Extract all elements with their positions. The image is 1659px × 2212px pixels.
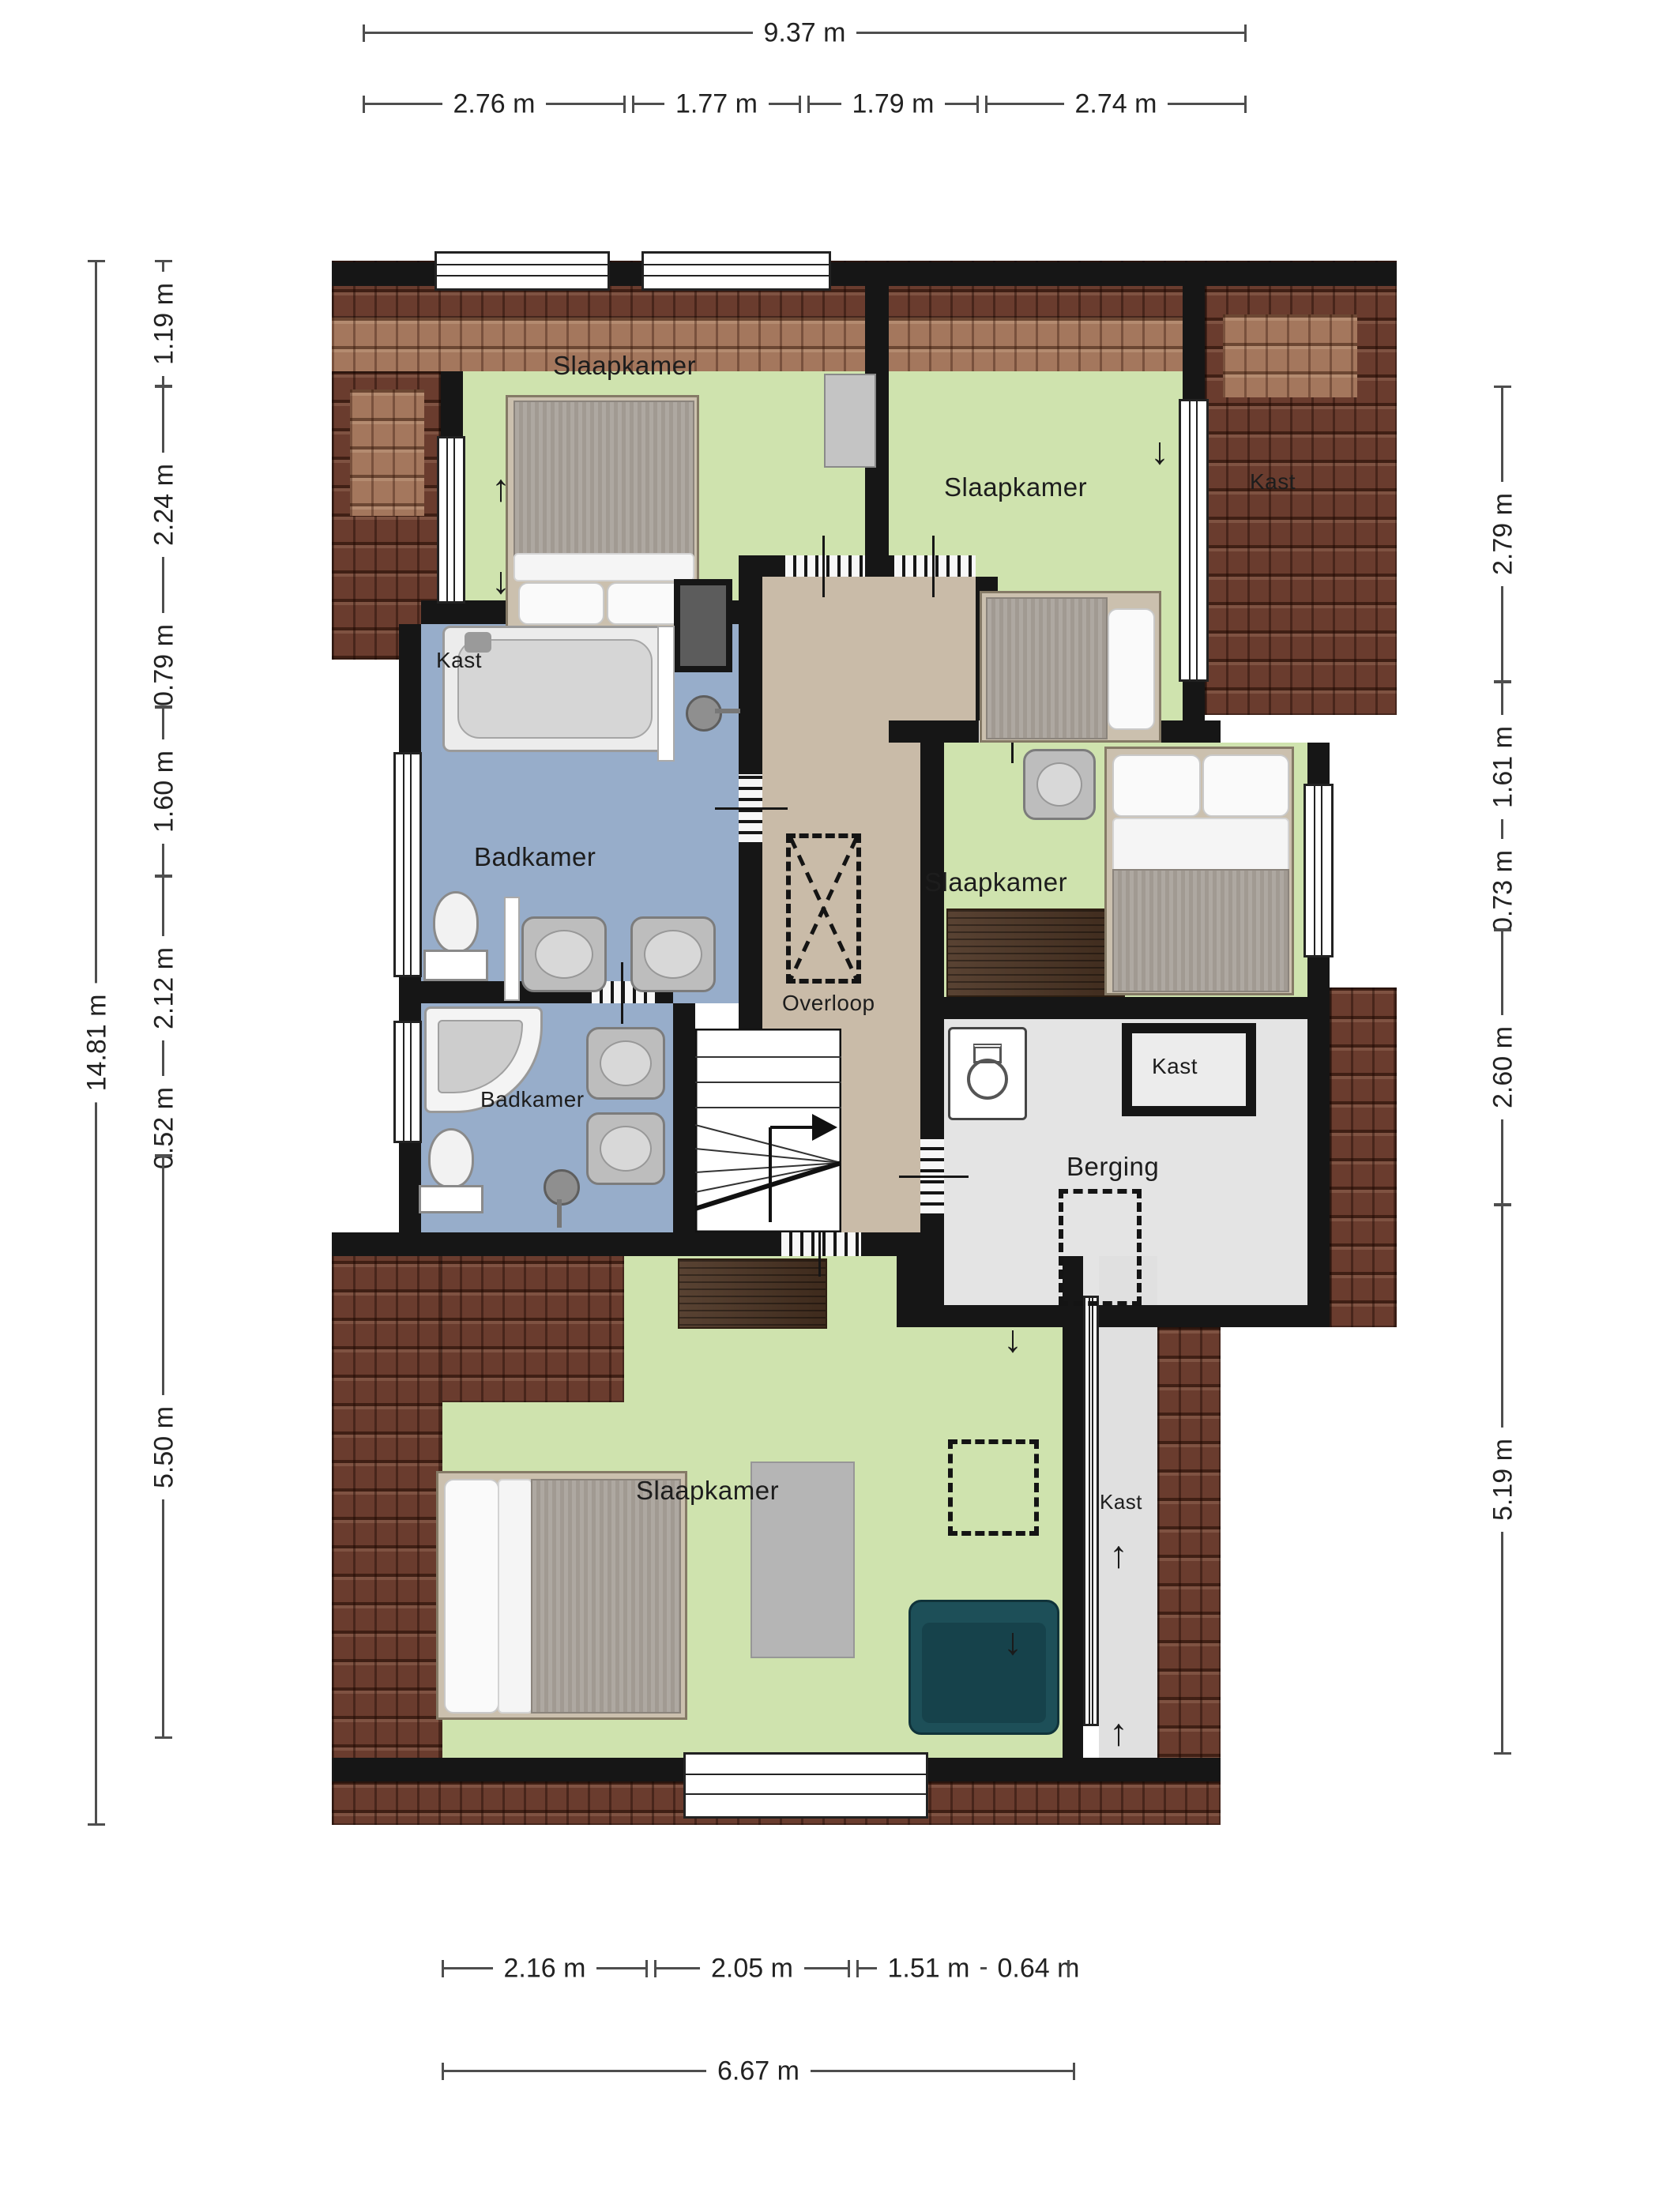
label-storage: Berging <box>1066 1152 1159 1182</box>
dim-right-seg-4: 2.60 m <box>1501 930 1503 1205</box>
wall-midbed-right-upper <box>1307 743 1330 786</box>
window-left-closet <box>437 436 465 604</box>
toilet-upper <box>433 891 479 953</box>
sink-lower-2 <box>586 1112 665 1185</box>
label-bathroom-lower: Badkamer <box>480 1087 585 1112</box>
roof-top-right-bump-inner <box>1223 314 1357 397</box>
sink-lower-1 <box>586 1027 665 1100</box>
wall-tr-right-lower <box>1183 679 1205 743</box>
window-topright-bedroom <box>1179 399 1209 682</box>
door-bathroom-lower-tick <box>621 962 623 1024</box>
bed-topleft-sheet <box>513 553 694 581</box>
sink-upper-2 <box>630 916 716 992</box>
dim-left-overall: 14.81 m <box>95 261 97 1825</box>
door-topleft-bedroom-tick <box>822 536 825 597</box>
toilet-lower <box>428 1128 474 1188</box>
door-bathroom-upper <box>739 774 762 845</box>
window-middle-bedroom <box>1303 784 1334 957</box>
wall-corridor-right-lower <box>920 1217 944 1232</box>
window-top-2 <box>641 251 831 291</box>
washing-machine <box>948 1027 1027 1120</box>
bed-middle-pillow-2 <box>1202 754 1289 817</box>
wall-bottomblock-top-right <box>861 1232 897 1256</box>
dim-top-overall-label: 9.37 m <box>753 17 857 51</box>
wall-bottom-left <box>332 1758 683 1781</box>
shower-head-upper <box>686 695 722 732</box>
dim-bottom-seg-3: 1.51 m <box>857 1967 1000 1969</box>
dim-left-seg-1: 1.19 m <box>162 261 164 386</box>
label-bedroom-topright: Slaapkamer <box>944 472 1087 502</box>
partition-shower-upper <box>657 626 675 762</box>
dim-top-seg-1: 2.76 m <box>363 103 625 105</box>
roof-top-band-inner <box>332 318 1221 373</box>
bed-bottom-pillow <box>444 1479 499 1714</box>
wall-top-bump <box>1221 262 1397 286</box>
skylight-bottom-bedroom <box>948 1439 1039 1536</box>
wall-midbed-right-lower <box>1307 956 1330 1019</box>
bed-topright-mattress <box>986 597 1108 739</box>
dim-bottom-seg-4: 0.64 m <box>1008 1967 1069 1969</box>
sink-upper-1 <box>521 916 607 992</box>
toilet-lower-tank <box>419 1185 483 1213</box>
window-bathroom-upper <box>393 752 422 977</box>
window-top-1 <box>434 251 610 291</box>
slope-arrow-tl-up: ↑ <box>491 470 510 508</box>
sink-middle-bedroom <box>1023 749 1096 820</box>
dim-top-seg-2: 1.77 m <box>633 103 800 105</box>
bed-middle-blanket <box>1112 869 1289 992</box>
slope-arrow-bottom-down-1: ↓ <box>1003 1321 1022 1359</box>
dim-bottom-overall-label: 6.67 m <box>706 2055 811 2089</box>
skylight-landing <box>786 833 861 984</box>
wall-bottom-right <box>928 1758 1221 1781</box>
window-bottom-closet <box>1083 1296 1099 1726</box>
dim-right-seg-2: 1.61 m <box>1501 682 1503 852</box>
dim-top-seg-4: 2.74 m <box>986 103 1246 105</box>
dim-left-seg-6: 0.52 m <box>162 1100 164 1156</box>
roof-left-closet-inner <box>350 389 424 516</box>
roof-right-of-storage <box>1330 987 1397 1327</box>
dim-left-seg-2: 2.24 m <box>162 386 164 623</box>
label-closet-storage: Kast <box>1152 1054 1198 1079</box>
window-bathroom-lower <box>393 1021 422 1143</box>
wall-storage-top <box>944 997 1330 1019</box>
toilet-upper-tank <box>423 950 488 981</box>
wall-bathroom-lower-right <box>673 1003 695 1232</box>
label-closet-left: Kast <box>436 648 482 673</box>
bed-middle-pillow-1 <box>1112 754 1201 817</box>
slope-arrow-tl-down: ↓ <box>491 562 510 600</box>
slope-arrow-closet-up-2: ↑ <box>1109 1714 1128 1752</box>
shower-arm-upper <box>715 709 740 713</box>
bed-bottom-blanket <box>531 1479 681 1714</box>
dim-right-seg-1: 2.79 m <box>1501 386 1503 682</box>
label-bedroom-bottom: Slaapkamer <box>636 1476 779 1506</box>
dim-bottom-seg-1: 2.16 m <box>442 1967 647 1969</box>
floorplan-canvas: ↑ ↓ ↓ ↓ ↓ ↑ ↑ Slaapkamer Slaapkamer Slaa… <box>0 0 1659 2212</box>
dim-right-seg-5: 5.19 m <box>1501 1205 1503 1754</box>
partition-sinks-upper <box>504 897 520 1001</box>
bed-middle-sheet <box>1112 818 1289 875</box>
armchair <box>908 1600 1059 1735</box>
desk-middle-bedroom <box>946 908 1125 997</box>
bed-bottom-sheet <box>498 1479 532 1714</box>
bed-topleft-blanket <box>513 401 694 559</box>
shower-arm-lower <box>557 1199 562 1228</box>
wall-bottomblock-right <box>1063 1256 1083 1758</box>
label-bathroom-upper: Badkamer <box>474 842 596 872</box>
label-landing: Overloop <box>782 991 875 1016</box>
label-bedroom-middle: Slaapkamer <box>924 867 1067 897</box>
dim-left-seg-3: 0.79 m <box>162 623 164 707</box>
room-landing-arm <box>889 577 976 720</box>
wall-storage-right <box>1307 1019 1330 1327</box>
roof-bottom-right-band <box>1157 1327 1221 1825</box>
roof-bottom-left-band <box>332 1232 442 1825</box>
dim-top-seg-3: 1.79 m <box>808 103 978 105</box>
dim-top-overall: 9.37 m <box>363 32 1246 34</box>
slope-arrow-tr-down: ↓ <box>1150 433 1169 471</box>
chimney <box>674 579 732 672</box>
dim-bottom-seg-2: 2.05 m <box>655 1967 849 1969</box>
label-closet-topright: Kast <box>1250 469 1296 495</box>
dim-right-seg-3: 0.73 m <box>1501 852 1503 930</box>
door-topright-bedroom-tick <box>932 536 935 597</box>
slope-arrow-bottom-down-2: ↓ <box>1003 1623 1022 1661</box>
dim-left-seg-4: 1.60 m <box>162 707 164 876</box>
stairs <box>695 1029 841 1232</box>
wall-corner-patch <box>897 1232 944 1327</box>
shower-head-lower <box>544 1169 580 1206</box>
skylight-storage <box>1059 1189 1142 1306</box>
door-bathroom-upper-tick <box>715 807 788 810</box>
wood-landing-bottom <box>678 1258 827 1329</box>
wall-storage-bottom <box>897 1305 1330 1327</box>
dresser-topleft <box>824 374 876 468</box>
wall-bottomblock-top-left <box>332 1232 778 1256</box>
bed-topright-cushion <box>1108 608 1155 730</box>
bed-topleft-pillow-1 <box>518 582 604 625</box>
dim-left-overall-label: 14.81 m <box>81 984 115 1103</box>
door-storage-tick <box>899 1176 969 1178</box>
wall-corridor-right-upper <box>920 720 944 1138</box>
slope-arrow-closet-up-1: ↑ <box>1109 1537 1128 1574</box>
dim-bottom-overall: 6.67 m <box>442 2070 1074 2072</box>
wall-tr-right-upper <box>1183 284 1205 399</box>
dim-left-seg-7: 5.50 m <box>162 1156 164 1738</box>
dim-left-seg-5: 2.12 m <box>162 876 164 1100</box>
label-closet-bottom: Kast <box>1100 1490 1142 1514</box>
window-bottom <box>683 1752 928 1819</box>
label-bedroom-topleft: Slaapkamer <box>553 351 696 381</box>
